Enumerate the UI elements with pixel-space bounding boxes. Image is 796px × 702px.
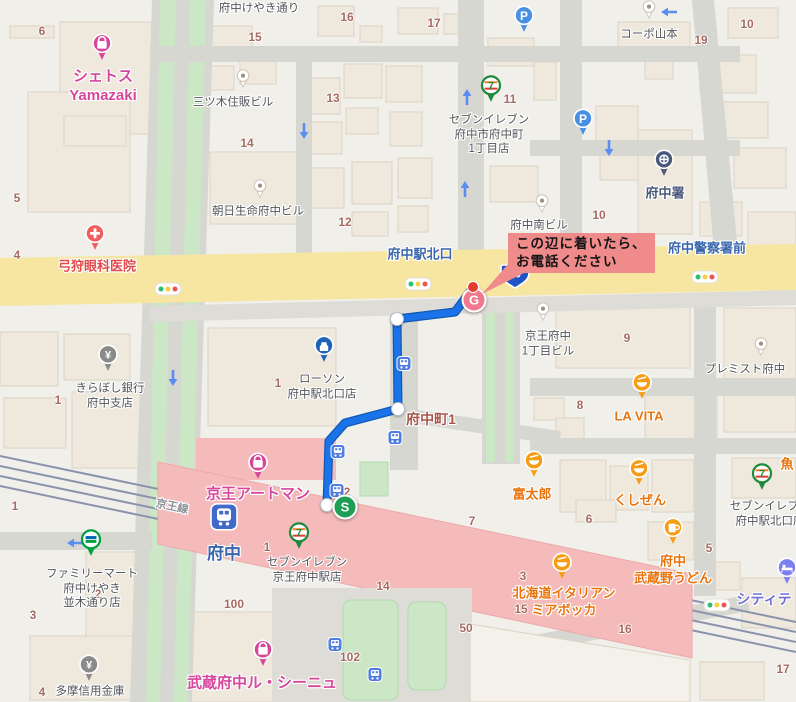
dot-pin[interactable] (253, 178, 267, 203)
block-number: 1 (12, 499, 19, 513)
block-number: 16 (340, 10, 353, 24)
hotel-pin[interactable] (776, 557, 796, 590)
bus-pin[interactable] (328, 637, 343, 657)
svg-text:¥: ¥ (105, 349, 112, 361)
block-number: 19 (694, 33, 707, 47)
block-number: 8 (577, 398, 584, 412)
map-label[interactable]: 朝日生命府中ビル (212, 205, 304, 220)
block-number: 12 (338, 215, 351, 229)
map-label[interactable]: 府中 武蔵野うどん (634, 553, 712, 586)
block-number: 13 (326, 91, 339, 105)
bank-pin[interactable]: ¥ (97, 344, 119, 377)
oneway-arrow-icon (656, 6, 679, 18)
block-number: 10 (592, 208, 605, 222)
map-label[interactable]: ファミリーマート 府中けやき 並木通り店 (46, 567, 138, 611)
block-number: 7 (469, 514, 476, 528)
map-label[interactable]: プレミスト府中 (705, 363, 786, 378)
parking-pin[interactable]: P (572, 108, 594, 141)
route-start-marker[interactable]: S (333, 495, 358, 520)
map-label[interactable]: 三ツ木住販ビル (193, 96, 274, 111)
shopping-pin[interactable] (91, 33, 113, 66)
traffic-light-icon (704, 599, 731, 612)
block-number: 3 (520, 569, 527, 583)
map-label[interactable]: セブンイレブン 府中駅北口店 (730, 499, 796, 528)
map-label[interactable]: セブンイレブン 京王府中駅店 (267, 555, 348, 584)
map-label[interactable]: 京王府中 1丁目ビル (522, 329, 574, 358)
dot-pin[interactable] (754, 336, 768, 361)
bus-pin[interactable] (388, 430, 403, 450)
map-label[interactable]: 京王アートマン (206, 484, 310, 503)
map-label[interactable]: 府中町1 (406, 411, 456, 429)
lawson-pin[interactable] (313, 335, 335, 368)
map-label[interactable]: 多摩信用金庫 (56, 685, 125, 700)
svg-text:7: 7 (759, 468, 765, 480)
block-number: 1 (55, 393, 62, 407)
food-pin[interactable] (628, 458, 650, 491)
block-number: 5 (14, 191, 21, 205)
block-number: 4 (39, 685, 46, 699)
block-number: 16 (618, 622, 631, 636)
svg-text:P: P (579, 112, 587, 126)
parking-pin[interactable]: P (513, 5, 535, 38)
block-number: 1 (275, 376, 282, 390)
block-number: 102 (340, 650, 360, 664)
map-label[interactable]: 府中警察署前 (668, 241, 746, 258)
callout-line1: この辺に着いたら、 (516, 236, 647, 251)
map-label[interactable]: セブンイレブン 府中市府中町 1丁目店 (449, 113, 530, 157)
svg-text:P: P (520, 9, 528, 23)
map-label[interactable]: 府中南ビル (510, 219, 568, 234)
traffic-light-icon (405, 278, 432, 291)
block-number: 1 (264, 540, 271, 554)
map-label[interactable]: シェトス Yamazaki (69, 67, 137, 105)
block-number: 11 (504, 92, 517, 106)
oneway-arrow-icon (461, 84, 473, 107)
block-number: 14 (240, 136, 253, 150)
svg-text:¥: ¥ (86, 659, 93, 671)
block-number: 14 (376, 579, 389, 593)
dot-pin[interactable] (535, 193, 549, 218)
block-number: 4 (14, 248, 21, 262)
map-label[interactable]: LA VITA (614, 409, 663, 426)
seven-pin[interactable]: 7 (751, 463, 773, 496)
map-label[interactable]: 府中署 (645, 186, 684, 203)
map-label[interactable]: 府中 (207, 543, 241, 565)
map-label[interactable]: ローソン 府中駅北口店 (288, 372, 357, 401)
block-number: 17 (427, 16, 440, 30)
dot-pin[interactable] (536, 301, 550, 326)
map-label[interactable]: 武蔵府中ル・シーニュ (187, 673, 337, 692)
dot-pin[interactable] (236, 68, 250, 93)
oneway-arrow-icon (603, 139, 615, 162)
police-pin[interactable] (653, 149, 675, 182)
block-number: 15 (248, 30, 261, 44)
seven-pin[interactable]: 7 (288, 522, 310, 555)
food-pin[interactable] (551, 552, 573, 585)
famima-pin[interactable] (80, 529, 102, 562)
bank-pin[interactable]: ¥ (78, 654, 100, 687)
shopping-pin[interactable] (252, 639, 274, 672)
oneway-arrow-icon (167, 369, 179, 392)
bus-pin[interactable] (368, 667, 383, 687)
map-label[interactable]: くしぜん (614, 493, 666, 510)
oneway-arrow-icon (298, 122, 310, 145)
map-label[interactable]: 府中けやき通り (219, 2, 300, 17)
block-number: 50 (459, 621, 472, 635)
map-label[interactable]: きらぼし銀行 府中支店 (76, 381, 145, 410)
route-waypoint (391, 402, 405, 416)
map-label[interactable]: コーポ山本 (620, 28, 678, 43)
bus-pin[interactable] (331, 444, 346, 464)
block-number: 6 (39, 24, 46, 38)
map-label[interactable]: シティテ (736, 591, 791, 609)
callout-tail (470, 260, 530, 300)
oneway-arrow-icon (459, 176, 471, 199)
bus-pin[interactable] (397, 356, 412, 376)
traffic-light-icon (692, 271, 719, 284)
map-label[interactable]: 魚 (780, 457, 793, 474)
route-waypoint (390, 312, 404, 326)
block-number: 100 (224, 597, 244, 611)
svg-text:7: 7 (488, 80, 494, 92)
train-pin[interactable] (210, 503, 238, 536)
hospital-pin[interactable] (84, 223, 106, 256)
mug-pin[interactable] (662, 517, 684, 550)
block-number: 3 (30, 608, 37, 622)
block-number: 6 (586, 512, 593, 526)
map-label[interactable]: 府中駅北口 (387, 247, 452, 264)
seven-pin[interactable]: 7 (480, 75, 502, 108)
block-number: 10 (740, 17, 753, 31)
map-label[interactable]: 北海道イタリアン ミアボッカ (513, 585, 616, 618)
dot-pin[interactable] (642, 0, 656, 24)
map-label[interactable]: 富太郎 (512, 487, 551, 504)
map-canvas[interactable]: 府中けやき通りシェトス Yamazaki三ツ木住販ビル朝日生命府中ビルコーポ山本… (0, 0, 796, 702)
svg-text:7: 7 (296, 527, 302, 539)
food-pin[interactable] (523, 450, 545, 483)
traffic-light-icon (155, 283, 182, 296)
food-pin[interactable] (631, 372, 653, 405)
block-number: 9 (624, 331, 631, 345)
block-number: 17 (776, 662, 789, 676)
callout-line2: お電話ください (516, 254, 618, 269)
shopping-pin[interactable] (247, 452, 269, 485)
map-label[interactable]: 弓狩眼科医院 (58, 259, 136, 276)
